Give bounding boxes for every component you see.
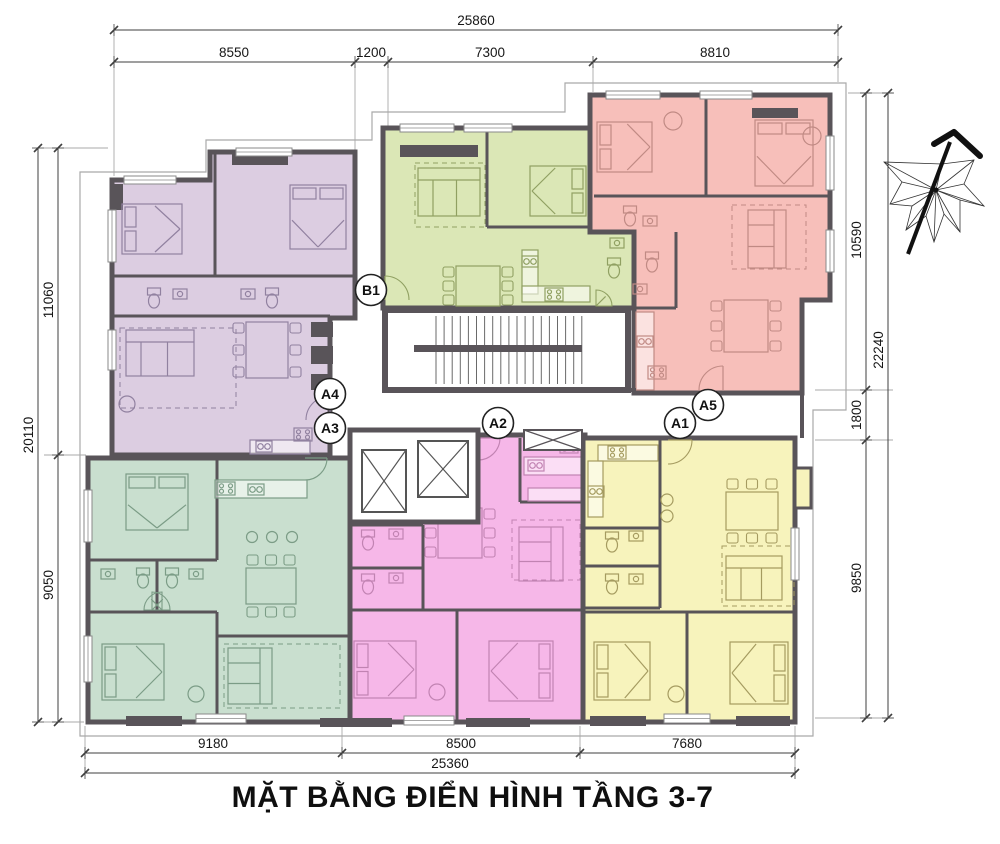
- svg-text:7300: 7300: [475, 45, 505, 60]
- north-arrow-icon: [884, 132, 984, 254]
- unit-label-B1: B1: [356, 275, 387, 306]
- unit-label-A5: A5: [693, 390, 724, 421]
- svg-text:A5: A5: [699, 397, 717, 413]
- svg-text:A4: A4: [321, 386, 339, 402]
- svg-text:A3: A3: [321, 420, 339, 436]
- unit-label-A2: A2: [483, 408, 514, 439]
- svg-text:8810: 8810: [700, 45, 730, 60]
- svg-text:B1: B1: [362, 282, 380, 298]
- unit-label-A3: A3: [315, 413, 346, 444]
- svg-text:A1: A1: [671, 415, 689, 431]
- unit-label-A4: A4: [315, 379, 346, 410]
- svg-text:10590: 10590: [849, 221, 864, 259]
- svg-text:9050: 9050: [41, 570, 56, 600]
- floor-plan-drawing: A4B1A5A3A2A12586085501200730088109180850…: [0, 0, 1000, 844]
- svg-text:8500: 8500: [446, 736, 476, 751]
- elevator-shafts: [350, 430, 478, 522]
- svg-text:9850: 9850: [849, 563, 864, 593]
- svg-text:22240: 22240: [871, 331, 886, 369]
- stairs: [385, 310, 628, 390]
- floor-plan-page: A4B1A5A3A2A12586085501200730088109180850…: [0, 0, 1000, 844]
- svg-text:20110: 20110: [21, 417, 36, 454]
- svg-text:9180: 9180: [198, 736, 228, 751]
- svg-text:25360: 25360: [431, 756, 469, 771]
- svg-text:1200: 1200: [356, 45, 386, 60]
- shaft-box: [524, 430, 582, 450]
- svg-text:8550: 8550: [219, 45, 249, 60]
- svg-text:11060: 11060: [41, 282, 56, 319]
- svg-text:25860: 25860: [457, 13, 495, 28]
- svg-text:1800: 1800: [849, 400, 864, 430]
- unit-label-A1: A1: [665, 408, 696, 439]
- svg-text:7680: 7680: [672, 736, 702, 751]
- plan-title: MẶT BẰNG ĐIỂN HÌNH TẦNG 3-7: [0, 781, 945, 815]
- svg-text:A2: A2: [489, 415, 507, 431]
